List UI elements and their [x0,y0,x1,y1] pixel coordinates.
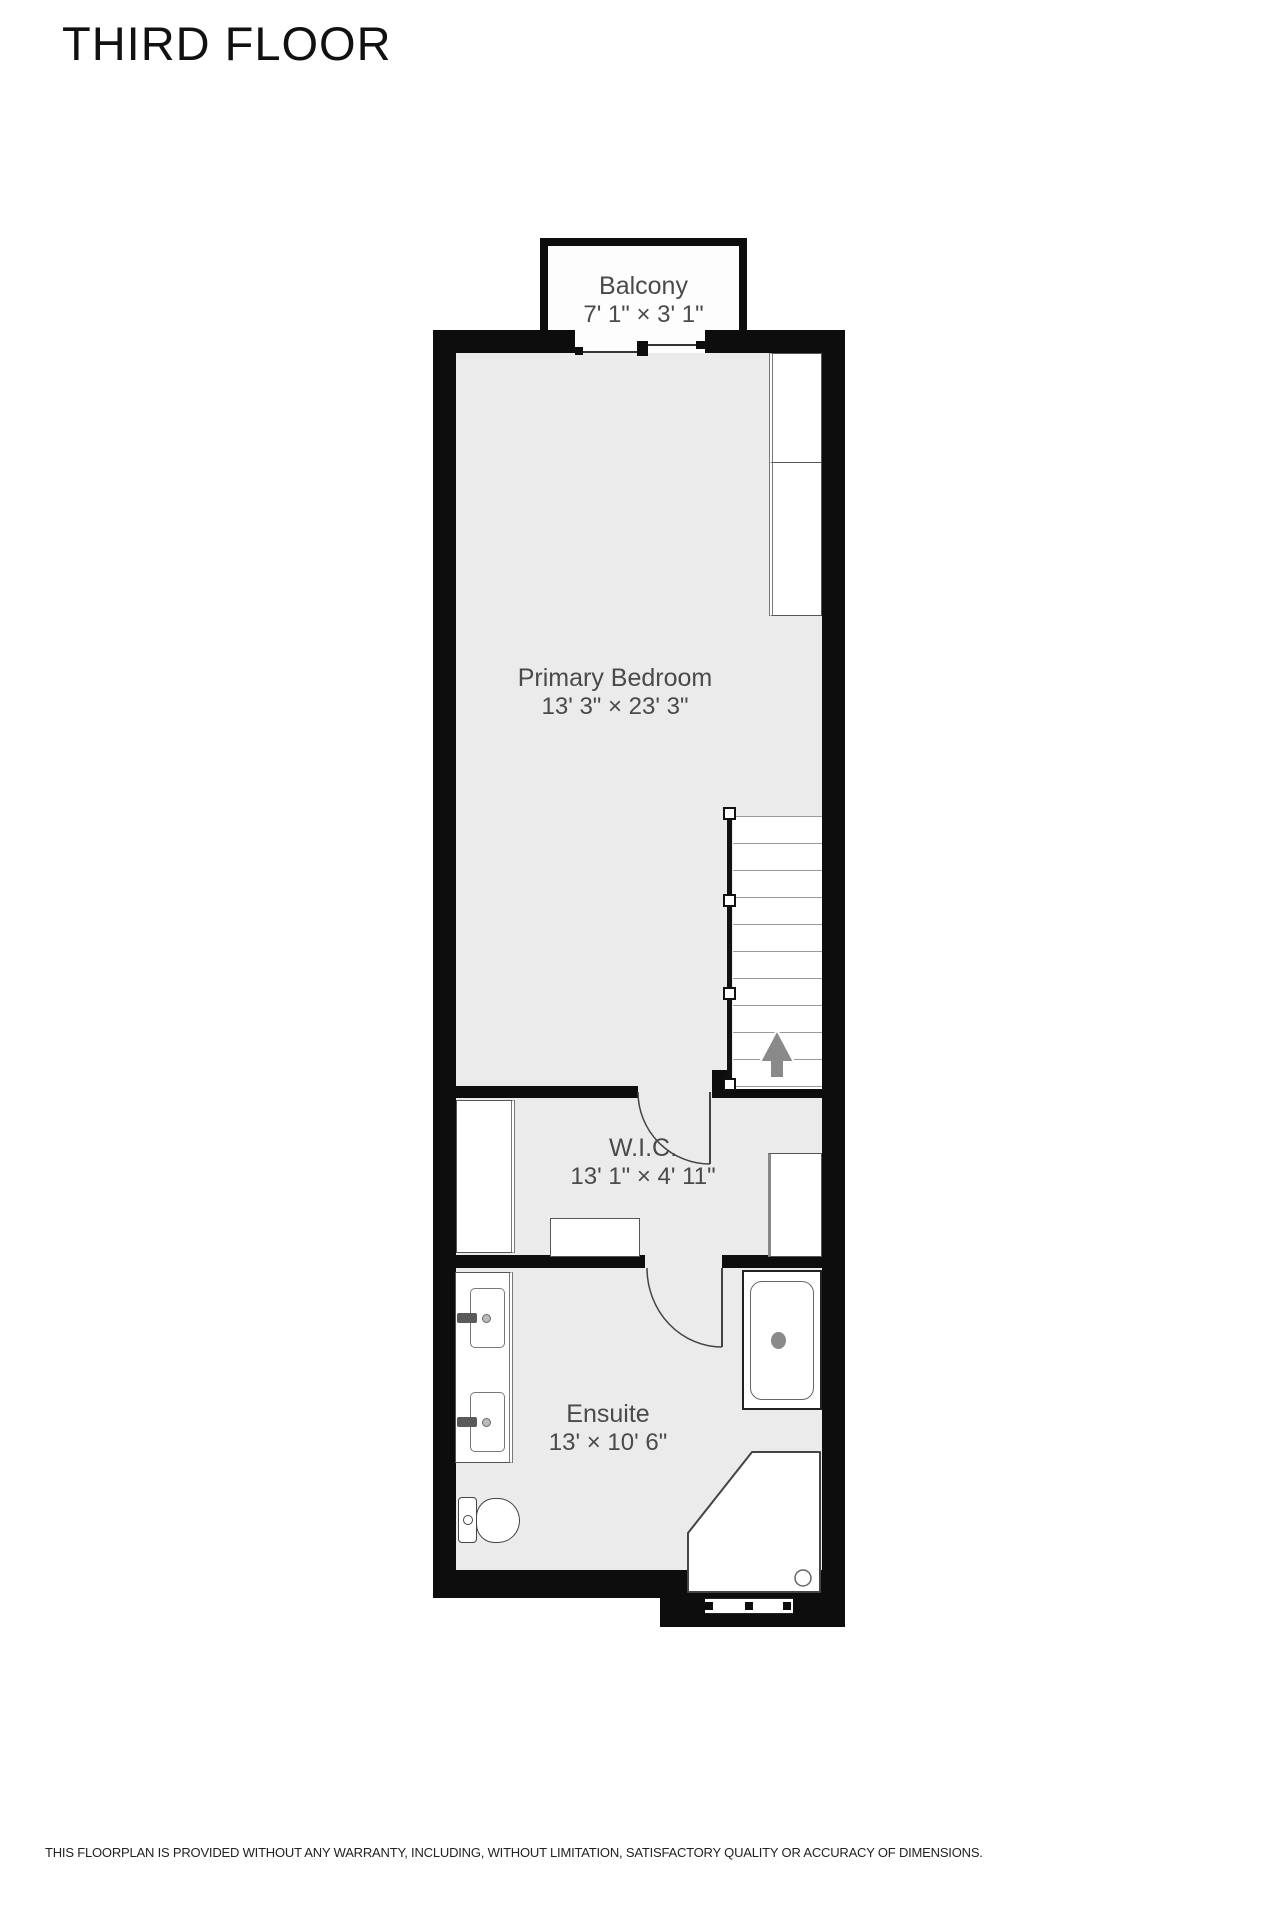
door-jamb-block [745,1602,753,1610]
wardrobe-closet [769,462,822,616]
door-jamb-block [696,341,705,349]
stairs-up-arrow-icon [760,1030,794,1078]
door-swing-arc [647,1268,722,1347]
room-label-balcony: Balcony 7' 1" × 3' 1" [540,272,747,328]
door-jamb-block [705,1602,713,1610]
room-label-ensuite: Ensuite 13' × 10' 6" [453,1400,763,1456]
shower-drain [795,1570,811,1586]
railing-post [723,894,736,907]
toilet-flush-button [463,1515,473,1525]
sliding-door-panel-line [577,351,643,353]
balcony-door-gap [575,330,705,353]
door-jamb-block [575,347,583,355]
disclaimer-text: THIS FLOORPLAN IS PROVIDED WITHOUT ANY W… [45,1845,983,1860]
corner-shower [680,1445,830,1605]
railing-post [723,807,736,820]
door-jamb-block [637,341,648,356]
sliding-door-panel-line [643,344,703,346]
shower-door [705,1598,793,1614]
railing-post [723,987,736,1000]
door-jamb-block [783,1602,791,1610]
floorplan-page: THIRD FLOOR [0,0,1280,1920]
toilet-bowl [476,1498,520,1543]
room-label-primary-bedroom: Primary Bedroom 13' 3" × 23' 3" [460,664,770,720]
wardrobe-closet [769,353,822,463]
page-title: THIRD FLOOR [62,16,392,71]
room-label-wic: W.I.C. 13' 1" × 4' 11" [488,1134,798,1190]
